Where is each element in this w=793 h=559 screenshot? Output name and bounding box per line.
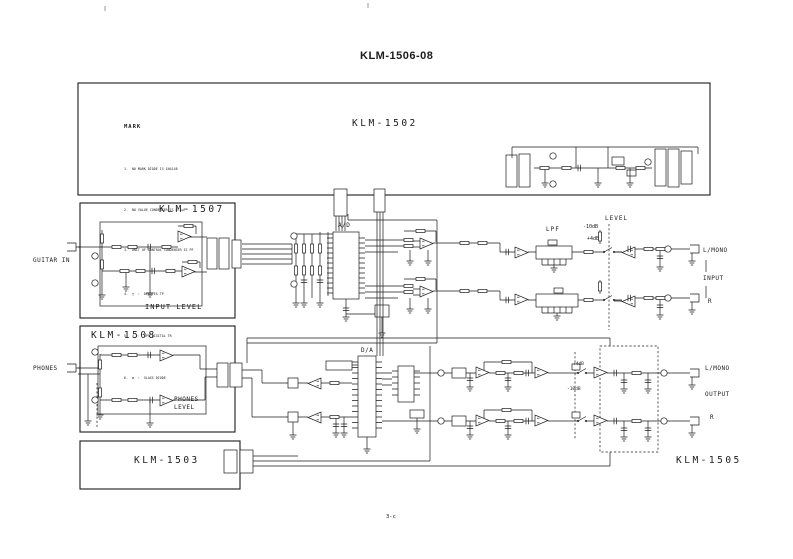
output-l-jack [686, 369, 699, 377]
page-title: KLM-1506-08 [360, 50, 433, 62]
lpf-module-2 [536, 294, 578, 307]
wires-output-jacks [548, 369, 692, 435]
switch-contact-dots [577, 251, 615, 422]
mark-legend-item: 4. □ : DENOTES TP [124, 293, 193, 297]
input-group-label: INPUT [703, 276, 724, 283]
mark-legend: 1. NO MARK DIODE IS 1N4148 2. NO VALUE C… [124, 133, 193, 402]
dac-support-ic [398, 366, 414, 402]
klm1505-label: KLM-1505 [676, 456, 742, 466]
phones-label: PHONES [33, 366, 58, 373]
input-level-label: INPUT LEVEL [145, 304, 202, 312]
input-l-jack [686, 245, 699, 253]
wires-bus [247, 212, 610, 363]
output-r-jack [686, 417, 699, 425]
output-pad-minus10-label: -10dB [567, 388, 581, 393]
klm1505-dashed-outline [600, 346, 658, 452]
wires-klm1503 [253, 346, 610, 466]
input-pad-plus4-label: +4dB [587, 237, 599, 243]
mark-legend-item: 2. NO VALUE CONDENSER IS 0.1µF [124, 209, 193, 213]
schematic-page: KLM-1506-08 KLM-1502 KLM-1507 KLM-1508 K… [0, 0, 793, 559]
opamp-symbols [160, 231, 635, 426]
klm1503-label: KLM-1503 [134, 456, 200, 466]
input-r-label: R [708, 299, 712, 306]
schematic-linework [0, 0, 793, 559]
dac-section-label: D/A [361, 348, 373, 355]
lpf-module-1 [536, 246, 572, 259]
connector-strips [207, 149, 692, 473]
guitar-in-label: GUITAR IN [33, 258, 70, 265]
mark-legend-item: 6. ø : GLASS DIODE [124, 377, 193, 381]
output-pad-plus4-label: +4dB [573, 363, 584, 368]
phones-level-label-1: PHONES [174, 397, 199, 404]
input-pad-minus10-label: -10dB [583, 225, 598, 231]
output-r-label: R [710, 415, 714, 422]
lpf-section-label: LPF [546, 227, 560, 234]
phones-jack [67, 364, 80, 372]
input-r-jack [686, 294, 699, 302]
guitar-in-jack [67, 243, 80, 251]
mark-legend-item: 3. UNIT OF CONTROL CONDENSER IS PF [124, 249, 193, 253]
input-l-label: L/MONO [703, 248, 728, 255]
output-l-label: L/MONO [705, 366, 730, 373]
mark-legend-item: 1. NO MARK DIODE IS 1N4148 [124, 168, 193, 172]
output-group-label: OUTPUT [705, 392, 730, 399]
wires-dac [242, 362, 420, 446]
dac-ic [358, 356, 376, 437]
klm1502-label: KLM-1502 [352, 119, 418, 129]
page-number: 3-c [386, 514, 396, 520]
page-tick-marks [105, 3, 368, 11]
level-section-label: LEVEL [605, 216, 628, 223]
mark-legend-heading: MARK [124, 124, 141, 130]
adc-ic [333, 232, 359, 299]
phones-level-label-2: LEVEL [174, 405, 195, 412]
adc-section-label: A/D [338, 223, 350, 230]
mark-legend-item: 5. ◇ : SPS DIGITAL TR [124, 335, 193, 339]
